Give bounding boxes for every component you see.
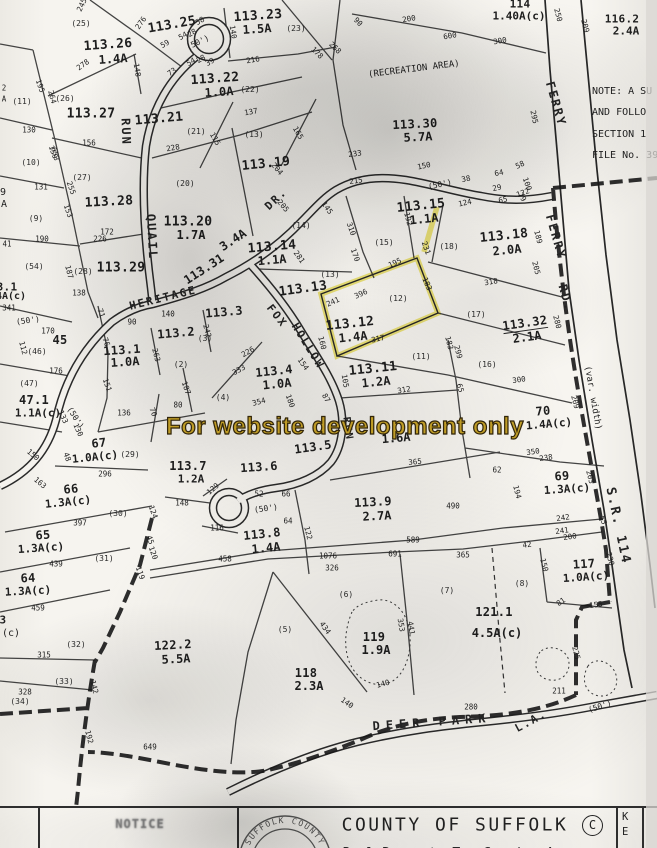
footer-divider bbox=[642, 808, 644, 848]
note-line: NOTE: A SU bbox=[592, 86, 652, 97]
map-label: (c) bbox=[2, 629, 20, 639]
map-label: (34) bbox=[10, 698, 29, 706]
map-label: 45 bbox=[52, 334, 67, 346]
map-label: 263 bbox=[151, 347, 162, 362]
map-label: 1076 bbox=[319, 552, 337, 560]
map-label: 113.6 bbox=[240, 460, 278, 475]
map-label: 130 bbox=[22, 126, 36, 134]
county-title: COUNTY OF SUFFOLK bbox=[342, 815, 569, 836]
map-label: (5) bbox=[278, 626, 292, 634]
map-label: (17) bbox=[466, 311, 485, 319]
footer-divider bbox=[616, 808, 618, 848]
map-label: 160 bbox=[317, 335, 328, 350]
map-label: 1.5A bbox=[242, 22, 272, 36]
map-label: 242 bbox=[202, 323, 213, 338]
map-label: 1.3A(c) bbox=[543, 482, 590, 496]
map-label: 341 bbox=[2, 304, 16, 312]
map-label: 1.2A bbox=[178, 474, 205, 485]
footer-bar: NOTICE COUNTY OF SUFFOLK C Real Property… bbox=[0, 806, 657, 848]
map-label: 67 bbox=[91, 436, 107, 450]
map-label: 140 bbox=[228, 25, 238, 40]
map-label: (46) bbox=[27, 348, 46, 356]
map-label: 138 bbox=[72, 289, 86, 297]
map-label: 2.3A bbox=[295, 680, 324, 692]
map-label: 119 bbox=[363, 631, 386, 643]
map-label: 38 bbox=[461, 174, 471, 183]
map-label: 29 bbox=[492, 183, 502, 192]
map-label: 114 bbox=[510, 0, 531, 10]
map-label: 170 bbox=[41, 327, 55, 335]
notice-stamp: NOTICE bbox=[115, 817, 164, 831]
map-label: 55 bbox=[598, 515, 608, 526]
map-label: 52 bbox=[254, 490, 263, 498]
map-label: 242 bbox=[556, 513, 570, 522]
map-label: 192 bbox=[84, 729, 95, 744]
map-label: 1.3A(c) bbox=[17, 541, 64, 555]
map-label: 280 bbox=[552, 314, 563, 329]
map-label: 353 bbox=[396, 618, 406, 633]
road-label-quail-run: QUAIL bbox=[145, 214, 159, 261]
map-label: 113.9 bbox=[354, 495, 392, 509]
map-label: 117 bbox=[572, 557, 595, 571]
map-label: 211 bbox=[552, 687, 566, 695]
map-label: 1.2A bbox=[361, 375, 391, 390]
roads-surface bbox=[0, 21, 657, 792]
map-label: 490 bbox=[446, 502, 460, 510]
map-label: (47) bbox=[19, 380, 38, 388]
footer-divider bbox=[38, 808, 40, 848]
map-label: 4A(c) bbox=[0, 292, 26, 302]
map-label: 200 bbox=[563, 532, 577, 541]
map-label: 113.20 bbox=[164, 216, 213, 229]
map-label: 200 bbox=[402, 14, 417, 24]
map-label: (11) bbox=[411, 353, 430, 361]
scan-edge bbox=[646, 0, 657, 848]
map-label: 116 bbox=[210, 524, 224, 532]
map-label: 113.27 bbox=[67, 108, 116, 121]
map-label: 1.0A(c) bbox=[562, 570, 609, 584]
map-label: 148 bbox=[132, 63, 142, 78]
map-label: 250 bbox=[553, 7, 564, 22]
map-label: 280 bbox=[464, 703, 478, 711]
map-label: 1.0A bbox=[110, 355, 140, 369]
map-label: 365 bbox=[456, 551, 470, 559]
map-label: (2) bbox=[174, 361, 188, 369]
map-label: 600 bbox=[443, 31, 458, 41]
roads-casing bbox=[0, 21, 657, 792]
map-label: 216 bbox=[246, 55, 261, 65]
map-label: 90 bbox=[127, 318, 136, 326]
map-label: 1.9A bbox=[362, 644, 391, 656]
tax-map-page: SUFFOLK COUNTY 113.261.4A113.25113.231.5… bbox=[0, 0, 657, 848]
map-label: 70 bbox=[535, 404, 551, 417]
map-label: 228 bbox=[166, 143, 181, 153]
map-label: 1.40A(c) bbox=[493, 11, 546, 22]
map-label: 176 bbox=[49, 367, 63, 375]
map-label: 1.1A(c) bbox=[15, 408, 61, 419]
map-label: 264 bbox=[47, 89, 58, 104]
map-label: (14) bbox=[291, 222, 310, 230]
map-label: (15) bbox=[374, 239, 393, 247]
map-label: 326 bbox=[325, 564, 339, 572]
key-letter-top: K bbox=[622, 811, 628, 823]
map-label: 5.5A bbox=[161, 652, 190, 665]
map-label: (10) bbox=[21, 159, 40, 167]
map-label: (30) bbox=[108, 510, 127, 518]
map-label: 209 bbox=[570, 394, 581, 409]
map-label: 118 bbox=[295, 667, 318, 679]
map-label: 42 bbox=[522, 541, 532, 550]
map-label: 1.0A bbox=[262, 377, 292, 392]
map-label: (16) bbox=[477, 361, 496, 369]
map-label: 203 bbox=[585, 469, 596, 484]
map-label: 2.4A bbox=[613, 26, 640, 37]
map-label: (12) bbox=[388, 295, 407, 303]
map-label: 66 bbox=[281, 490, 290, 498]
watermark: For website development only bbox=[166, 413, 524, 441]
map-label: 296 bbox=[98, 470, 112, 478]
map-label: (28) bbox=[73, 268, 92, 276]
map-label: (27) bbox=[72, 174, 91, 182]
map-label: 2.0A bbox=[492, 243, 522, 258]
map-label: (9) bbox=[29, 215, 43, 223]
map-label: 64 bbox=[283, 517, 292, 525]
map-label: 3 bbox=[0, 615, 6, 626]
map-label: A bbox=[1, 200, 7, 210]
map-label: 209 bbox=[580, 18, 591, 33]
map-label: (21) bbox=[186, 128, 205, 136]
map-label: (6) bbox=[339, 591, 353, 599]
map-label: 65 bbox=[455, 383, 465, 394]
map-label: 300 bbox=[493, 36, 508, 46]
note-line: AND FOLLO bbox=[592, 107, 646, 118]
map-label: (23) bbox=[286, 25, 305, 33]
map-label: (18) bbox=[439, 243, 458, 251]
map-label: (22) bbox=[240, 86, 259, 94]
map-label: 215 bbox=[349, 176, 363, 185]
map-label: 295 bbox=[529, 110, 539, 125]
map-label: 131 bbox=[34, 183, 48, 191]
map-label: 116.2 bbox=[605, 14, 640, 25]
map-label: 140 bbox=[161, 310, 175, 318]
map-label: 441 bbox=[406, 621, 416, 636]
map-label: 65 bbox=[35, 528, 51, 541]
road-label-quail-run: RUN bbox=[120, 118, 133, 146]
map-label: 300 bbox=[512, 375, 526, 384]
map-label: 142 bbox=[89, 679, 100, 694]
map-label: 1.0A bbox=[204, 85, 234, 99]
map-label: 64 bbox=[494, 168, 504, 177]
map-label: 69 bbox=[554, 469, 570, 482]
map-label: 653 bbox=[50, 146, 61, 161]
map-label: 41 bbox=[2, 240, 11, 248]
map-label: 194 bbox=[512, 484, 523, 499]
map-label: 318 bbox=[484, 277, 499, 287]
map-label: 156 bbox=[82, 139, 96, 147]
map-label: 121.1 bbox=[475, 606, 513, 618]
map-label: 65 bbox=[498, 195, 508, 204]
map-label: (54) bbox=[24, 263, 43, 271]
map-label: 148 bbox=[175, 499, 189, 507]
map-label: 113.2 bbox=[157, 325, 196, 340]
map-label: 47.1 bbox=[19, 394, 49, 406]
map-label: 105 bbox=[340, 374, 350, 389]
dashed-lot-line bbox=[492, 548, 505, 693]
map-label: (33) bbox=[54, 678, 73, 686]
map-label: 112 bbox=[18, 340, 29, 355]
map-label: 113.7 bbox=[169, 460, 207, 472]
map-label: 190 bbox=[35, 235, 49, 243]
map-label: 1.4A bbox=[338, 330, 368, 345]
map-label: 649 bbox=[143, 743, 157, 751]
map-label: 113.3 bbox=[205, 304, 244, 319]
map-label: 365 bbox=[408, 458, 422, 467]
map-label: 113.28 bbox=[84, 194, 133, 210]
map-label: 2 bbox=[2, 84, 7, 92]
map-label: 62 bbox=[492, 466, 501, 474]
map-label: 397 bbox=[73, 519, 87, 527]
map-label: 155 bbox=[589, 600, 603, 609]
map-label: (4) bbox=[216, 394, 230, 402]
map-label: 137 bbox=[244, 107, 259, 117]
footer-divider bbox=[237, 808, 239, 848]
map-label: 122 bbox=[303, 525, 314, 540]
map-label: 459 bbox=[31, 604, 45, 612]
map-label: 458 bbox=[218, 555, 232, 563]
map-label: 136 bbox=[117, 409, 131, 417]
map-label: 1.3A(c) bbox=[5, 584, 52, 597]
map-label: (13) bbox=[244, 131, 263, 139]
map-label: 5.7A bbox=[403, 130, 432, 143]
map-label: 589 bbox=[406, 536, 420, 544]
map-label: 226 bbox=[93, 235, 107, 243]
wetland-1 bbox=[536, 648, 569, 680]
map-label: 122.2 bbox=[154, 638, 192, 652]
note-line: SECTION 1 bbox=[592, 129, 646, 140]
map-label: (7) bbox=[440, 587, 454, 595]
map-label: 233 bbox=[348, 149, 362, 158]
map-label: 230 bbox=[605, 551, 616, 566]
map-label: 238 bbox=[539, 453, 553, 462]
map-label: 328 bbox=[18, 688, 32, 696]
map-label: 225 bbox=[571, 645, 582, 660]
map-label: 2.1A bbox=[512, 329, 542, 345]
map-label: 205 bbox=[531, 260, 542, 275]
map-label: 4.5A(c) bbox=[472, 627, 523, 639]
map-label: (13) bbox=[320, 271, 339, 279]
map-label: (29) bbox=[120, 451, 139, 459]
map-label: 315 bbox=[37, 651, 51, 659]
map-label: (8) bbox=[515, 580, 529, 588]
map-label: 113.29 bbox=[97, 262, 146, 275]
map-label: 64 bbox=[20, 572, 36, 585]
map-label: (31) bbox=[94, 555, 113, 563]
map-label: 691 bbox=[388, 550, 402, 558]
map-label: 80 bbox=[173, 401, 182, 409]
map-label: 187 bbox=[64, 264, 75, 279]
copyright-icon: C bbox=[582, 815, 603, 836]
map-label: 1.1A bbox=[257, 253, 287, 267]
wetland-2 bbox=[584, 661, 616, 696]
map-label: 1.7A bbox=[177, 229, 206, 241]
map-label: A bbox=[2, 95, 7, 103]
key-letter-bottom: E bbox=[622, 826, 628, 838]
map-label: (32) bbox=[66, 641, 85, 649]
map-label: 1.4A bbox=[251, 541, 281, 556]
map-label: (11) bbox=[12, 98, 31, 106]
map-label: 150 bbox=[539, 557, 550, 572]
map-label: 192 bbox=[403, 211, 414, 226]
map-label: 2.7A bbox=[362, 509, 391, 522]
map-label: 439 bbox=[49, 560, 63, 568]
map-label: (20) bbox=[175, 180, 194, 188]
map-label: 189 bbox=[533, 229, 544, 244]
map-label: 9 bbox=[0, 188, 6, 198]
map-label: 312 bbox=[397, 385, 412, 395]
map-label: (25) bbox=[71, 20, 90, 28]
map-label: 1.4A bbox=[98, 52, 128, 66]
map-label: 299 bbox=[453, 344, 464, 359]
